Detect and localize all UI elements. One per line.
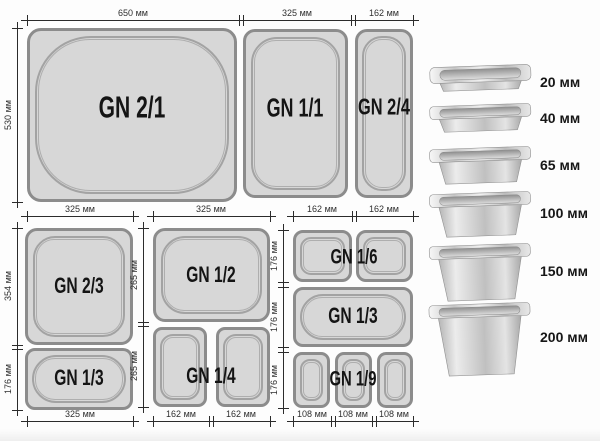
dim-label-176: 176 мм: [269, 302, 279, 332]
dim-label-108: 108 мм: [379, 409, 409, 419]
pan-label-gn-1-4: GN 1/4: [186, 364, 235, 390]
dim-line-groupright-bottom: 108 мм 108 мм 108 мм: [287, 421, 419, 422]
dim-label-108: 108 мм: [338, 409, 368, 419]
pan-label-gn-1-2: GN 1/2: [186, 263, 235, 289]
dim-label-530: 530 мм: [3, 100, 13, 130]
dim-label-354: 354 мм: [3, 271, 13, 301]
depth-label-20mm: 20 мм: [540, 72, 596, 92]
dim-line-groupright-top: 162 мм 162 мм: [287, 216, 419, 217]
dim-label-162: 162 мм: [307, 204, 337, 214]
pan-photo-40mm: [428, 101, 533, 135]
depth-label-200mm: 200 мм: [540, 327, 596, 347]
dim-line-groupleft-top: 325 мм: [21, 216, 139, 217]
depth-label-150mm: 150 мм: [540, 261, 596, 281]
dim-label-162-top: 162 мм: [369, 8, 399, 18]
dim-label-108: 108 мм: [297, 409, 327, 419]
dim-label-325: 325 мм: [65, 204, 95, 214]
pan-gn-1-9-c: [377, 352, 413, 408]
pan-label-gn-1-9: GN 1/9: [330, 368, 377, 393]
dim-label-325: 325 мм: [65, 409, 95, 419]
dim-label-176: 176 мм: [3, 364, 13, 394]
dim-label-162: 162 мм: [226, 409, 256, 419]
gn-container-sizes-infographic: 650 мм 325 мм 162 мм 530 мм GN 2/1 GN 1/…: [0, 0, 600, 441]
depth-label-40mm: 40 мм: [540, 108, 596, 128]
dim-label-325: 325 мм: [196, 204, 226, 214]
dim-line-groupleft-side: 354 мм 176 мм: [17, 222, 18, 416]
dim-label-162: 162 мм: [166, 409, 196, 419]
pan-label-gn-2-4: GN 2/4: [358, 95, 410, 122]
dim-line-groupmid-bottom: 162 мм 162 мм: [147, 421, 276, 422]
pan-gn-1-9-a: [293, 352, 330, 408]
pan-rim-inner: [303, 362, 320, 398]
pan-photo-150mm: [428, 241, 533, 303]
pan-label-gn-2-3: GN 2/3: [54, 274, 103, 300]
pan-label-gn-1-1: GN 1/1: [267, 93, 324, 123]
dim-label-265: 265 мм: [129, 260, 139, 290]
dim-label-265: 265 мм: [129, 351, 139, 381]
pan-photo-20mm: [428, 58, 533, 98]
dim-line-groupmid-top: 325 мм: [147, 216, 276, 217]
dim-line-top-row: 650 мм 325 мм 162 мм: [21, 20, 419, 21]
dim-label-176: 176 мм: [269, 241, 279, 271]
depth-label-100mm: 100 мм: [540, 203, 596, 223]
page-bottom-shade: [0, 429, 600, 441]
pan-photo-100mm: [428, 189, 533, 239]
dim-label-325-top: 325 мм: [282, 8, 312, 18]
dim-line-groupmid-side: 265 мм 265 мм: [143, 222, 144, 413]
dim-line-groupleft-bottom: 325 мм: [21, 421, 139, 422]
dim-label-162: 162 мм: [369, 204, 399, 214]
pan-label-gn-1-3-left: GN 1/3: [54, 366, 103, 392]
pan-label-gn-2-1: GN 2/1: [99, 91, 166, 126]
dim-label-176: 176 мм: [269, 365, 279, 395]
pan-label-gn-1-6: GN 1/6: [331, 246, 378, 271]
pan-rim-inner: [387, 362, 403, 398]
pan-label-gn-1-3-right: GN 1/3: [328, 304, 377, 330]
pan-photo-65mm: [428, 144, 533, 186]
pan-photo-200mm: [428, 300, 533, 378]
depth-label-65mm: 65 мм: [540, 155, 596, 175]
dim-line-groupright-side: 176 мм 176 мм 176 мм: [283, 224, 284, 414]
dim-line-530: 530 мм: [17, 22, 18, 208]
dim-label-650: 650 мм: [118, 8, 148, 18]
